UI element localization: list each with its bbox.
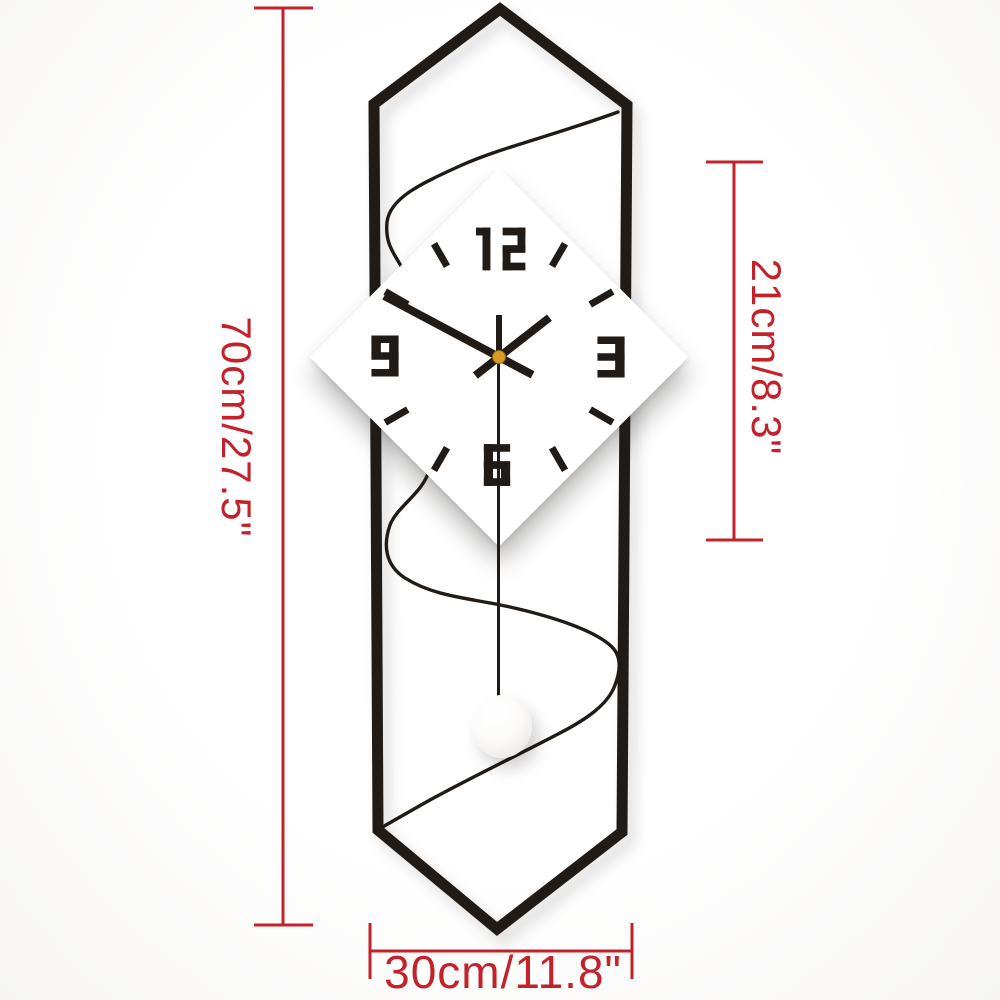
- product-dimension-image: 70cm/27.5" 21cm/8.3" 30cm/11.8": [0, 0, 1000, 1000]
- clock-face-height-dimension-label: 21cm/8.3": [742, 259, 790, 456]
- dimension-lines-layer: [0, 0, 1000, 1000]
- overall-height-dimension-label: 70cm/27.5": [212, 316, 260, 537]
- overall-width-dimension-label: 30cm/11.8": [384, 945, 622, 999]
- overall-height-dimension-line: [254, 8, 313, 925]
